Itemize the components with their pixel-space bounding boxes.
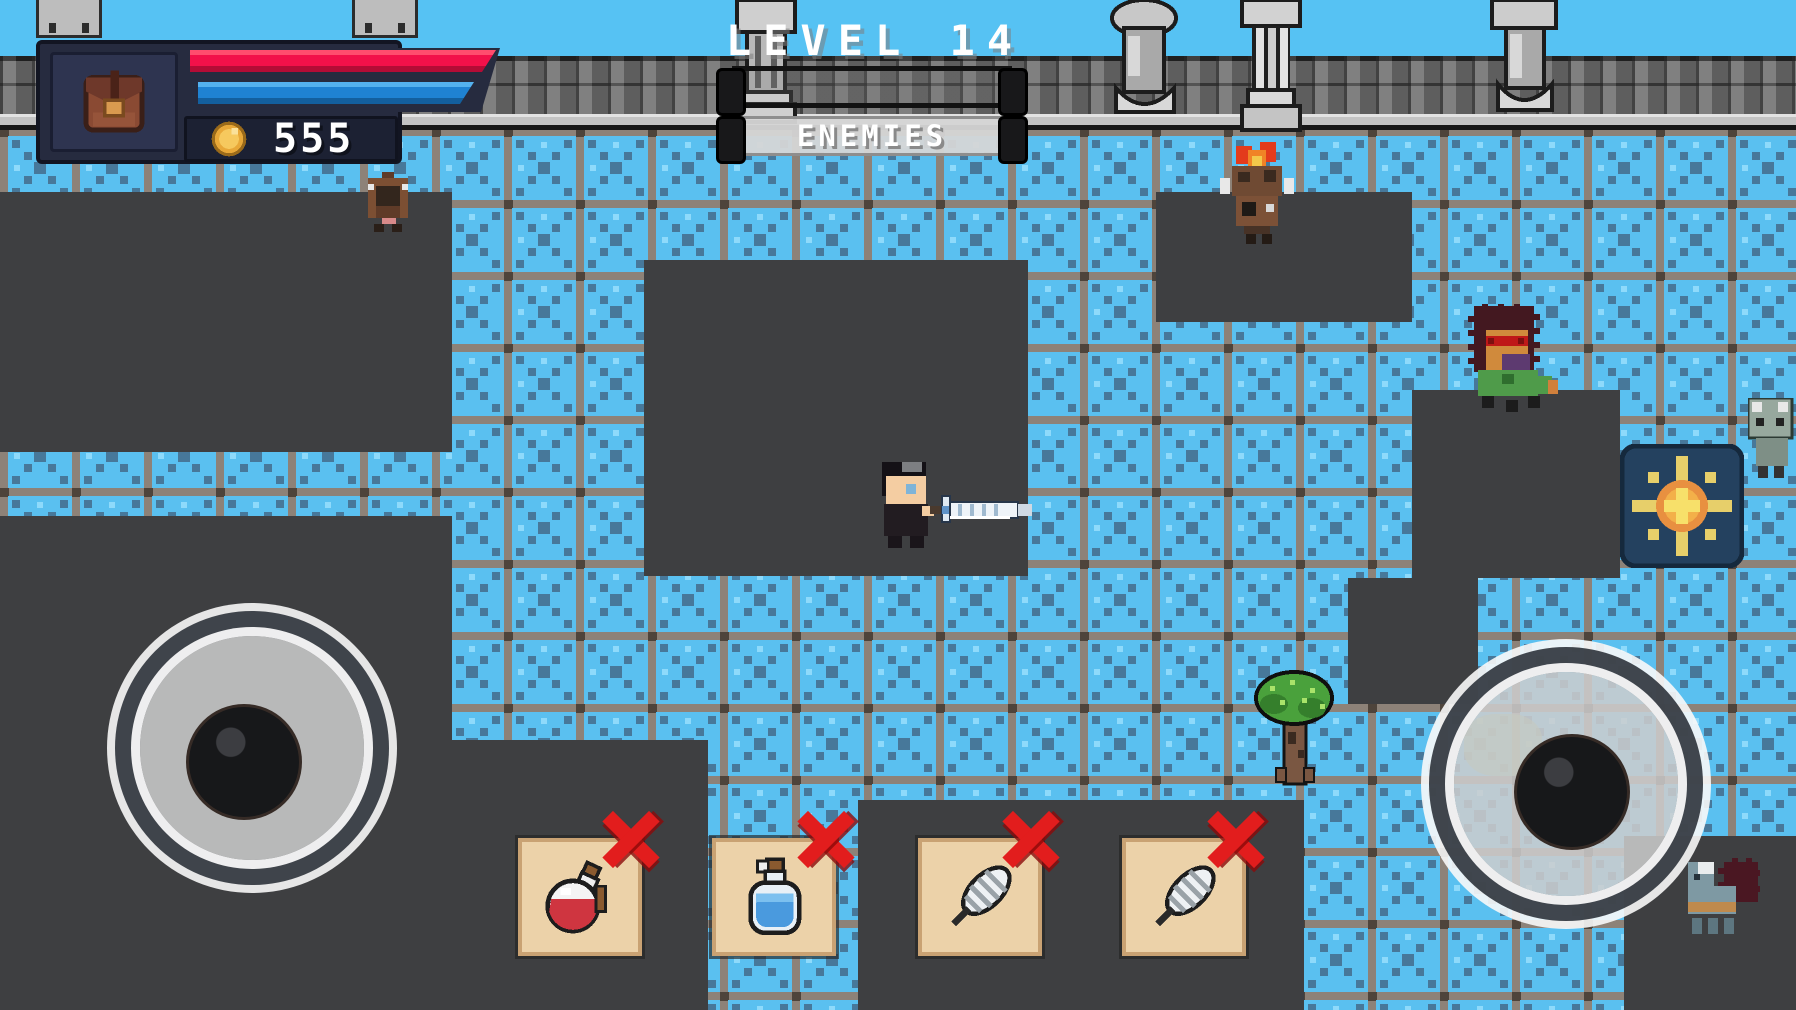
remove-item-button[interactable] <box>1205 808 1267 870</box>
enemy-brown-beast <box>362 166 414 232</box>
enemies-progress-bar: ENEMIES <box>732 116 1012 156</box>
enemy-blue-llama-with-spike-blob <box>1680 858 1760 942</box>
game-stage: 555 LEVEL 14 ENEMIES <box>0 0 1796 1010</box>
enemy-spiky-green-brute <box>1462 304 1558 416</box>
level-progress-bar <box>732 66 1012 108</box>
aim-joystick-knob[interactable] <box>1514 734 1630 850</box>
energy-bar <box>198 82 474 104</box>
remove-item-button[interactable] <box>600 808 662 870</box>
player-with-sword <box>866 462 1036 550</box>
merlon-block <box>352 0 418 38</box>
sun-rune-tile <box>1620 444 1744 568</box>
stone-column-icon <box>1238 0 1304 134</box>
dark-floor-right-mid <box>1412 390 1620 578</box>
coin-icon <box>211 121 247 157</box>
bar-end-cap <box>716 116 746 164</box>
coin-count: 555 <box>273 116 354 162</box>
player-hud-panel: 555 <box>36 40 402 164</box>
bar-end-cap <box>998 68 1028 116</box>
stone-column-icon <box>1488 0 1560 120</box>
movement-joystick-knob[interactable] <box>186 704 302 820</box>
stone-column-icon <box>1108 0 1182 120</box>
tree <box>1250 668 1340 794</box>
backpack-icon <box>72 60 156 144</box>
enemy-gray-golem <box>1748 398 1796 484</box>
health-bar <box>190 50 496 72</box>
aim-joystick[interactable] <box>1454 672 1678 896</box>
movement-joystick[interactable] <box>140 636 364 860</box>
merlon-block <box>36 0 102 38</box>
enemies-label: ENEMIES <box>797 119 947 153</box>
bar-end-cap <box>998 116 1028 164</box>
level-label: LEVEL 14 <box>660 16 1090 65</box>
coin-counter: 555 <box>184 116 398 162</box>
backpack-button[interactable] <box>50 52 178 152</box>
bar-end-cap <box>716 68 746 116</box>
enemy-flame-head-warrior <box>1220 142 1294 244</box>
remove-item-button[interactable] <box>1000 808 1062 870</box>
remove-item-button[interactable] <box>795 808 857 870</box>
dark-floor-right-low <box>1348 578 1478 704</box>
